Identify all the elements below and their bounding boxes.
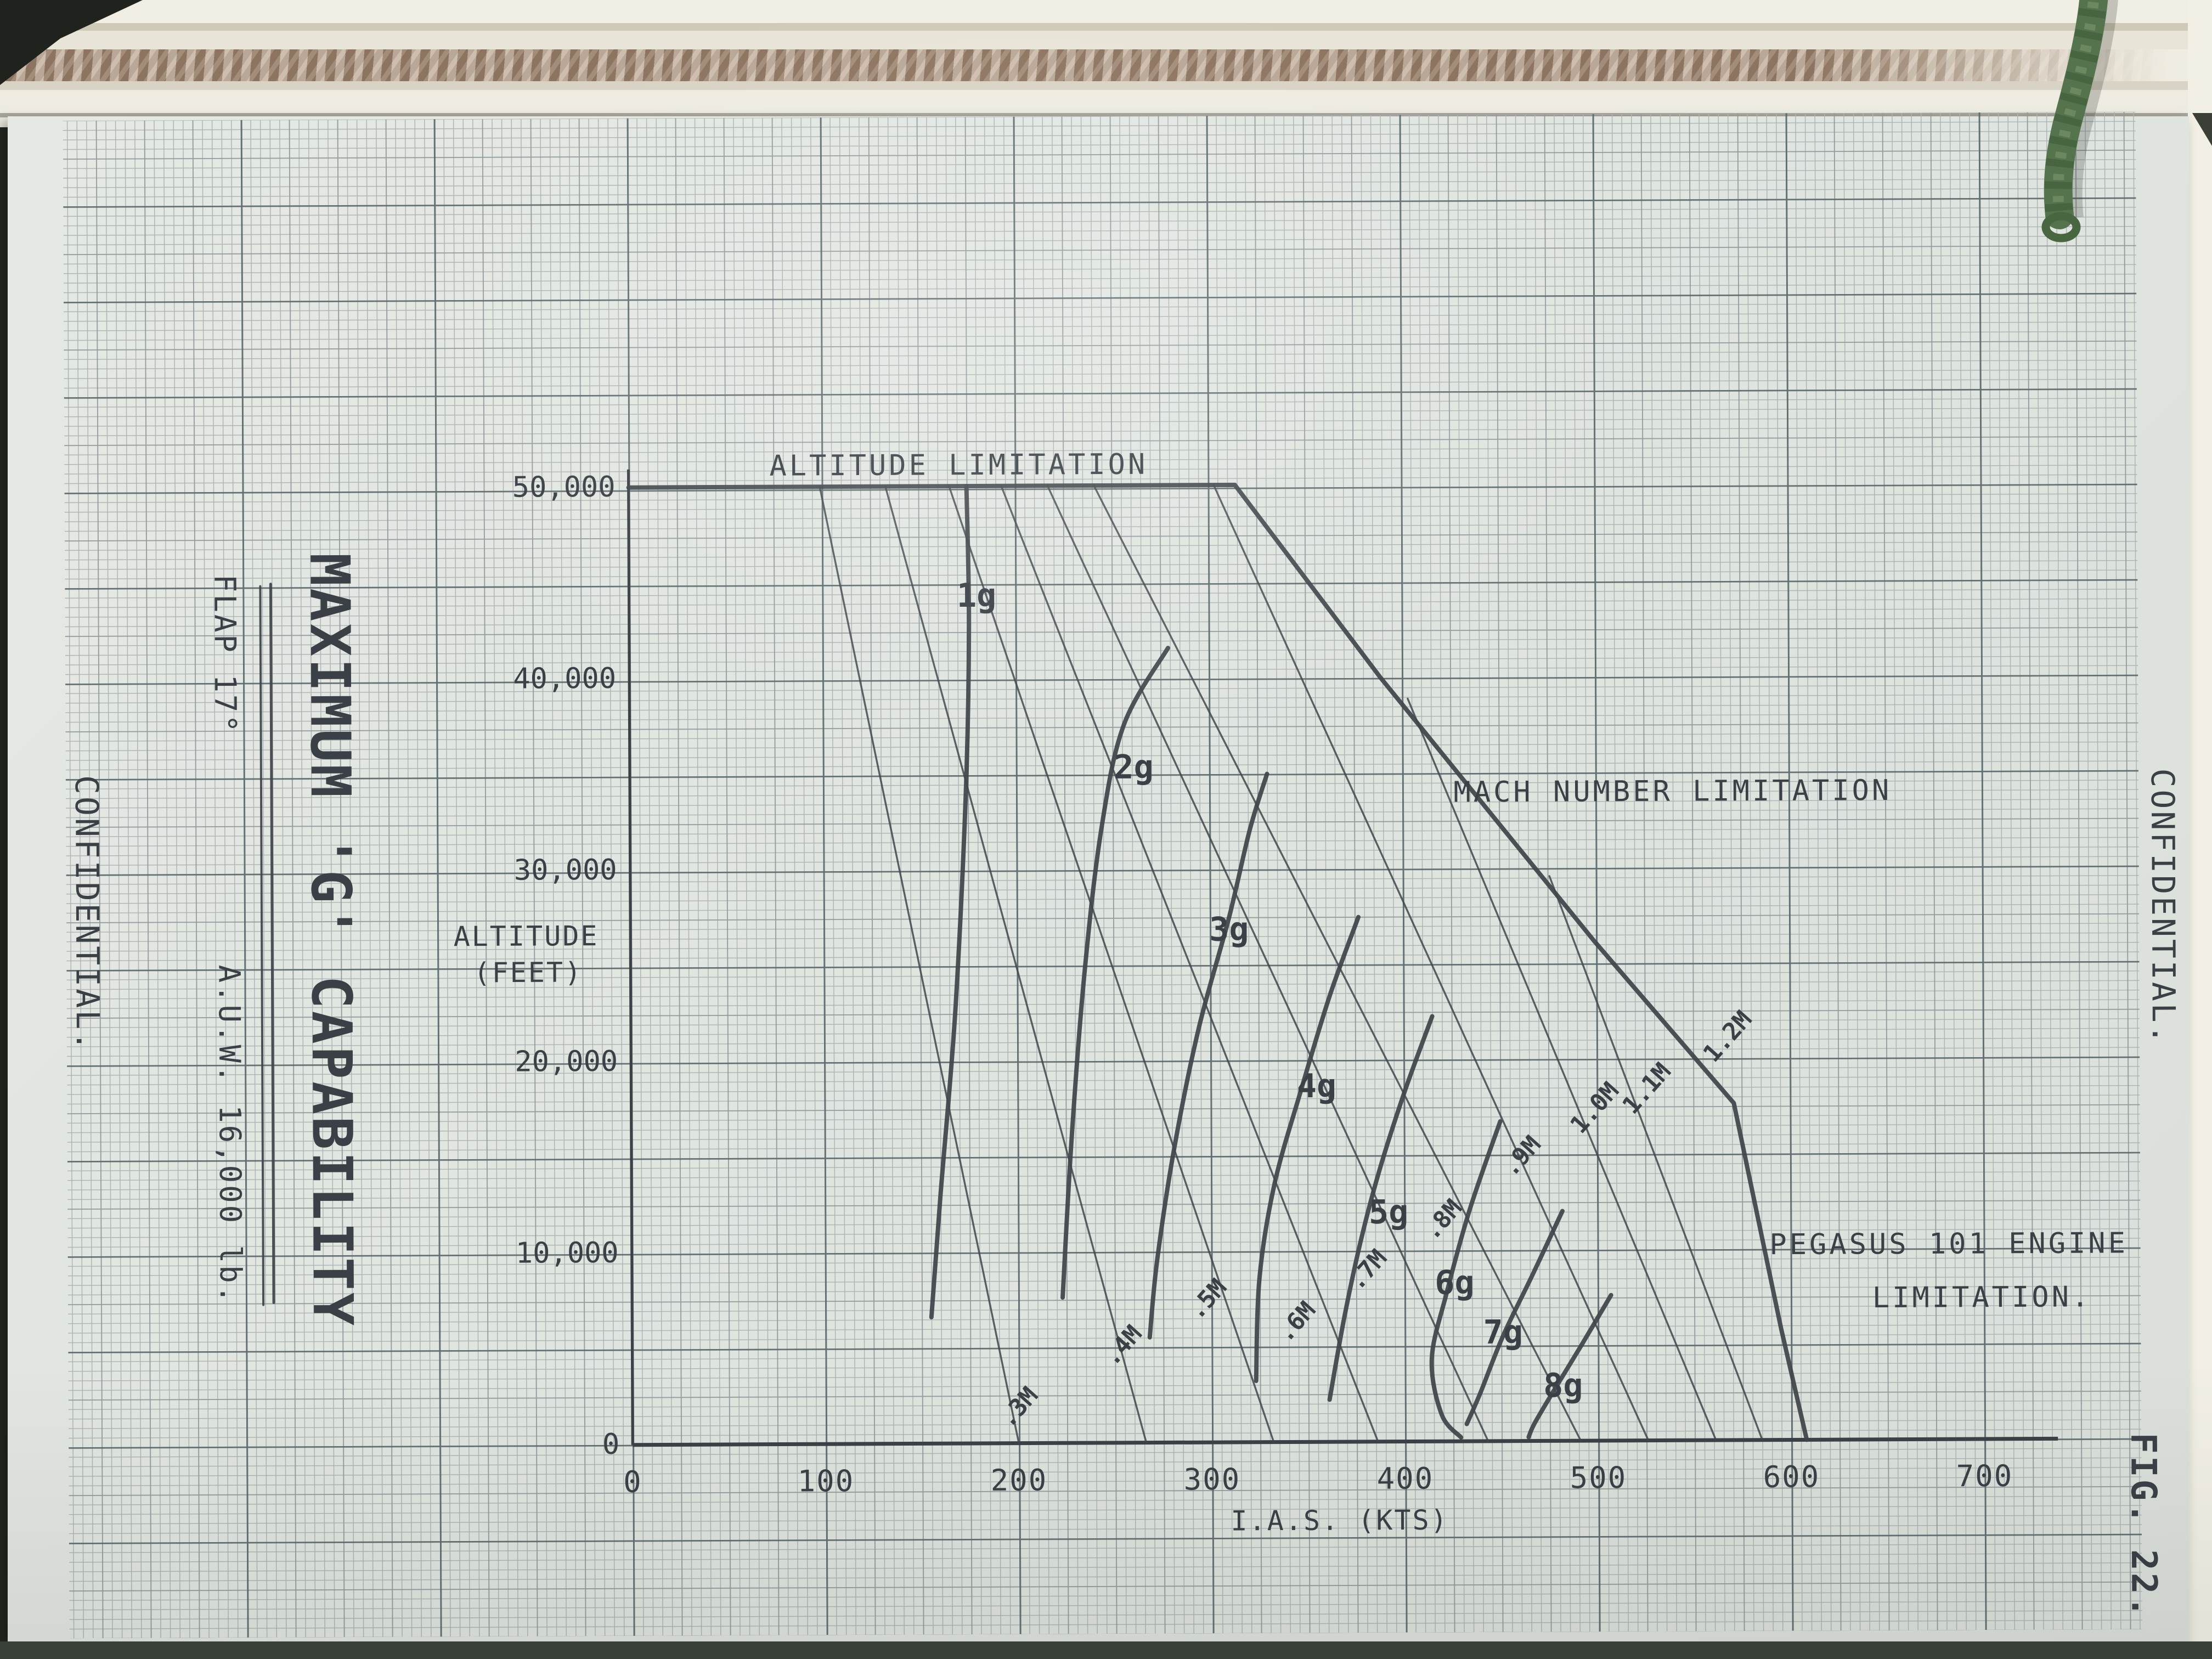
binding-cord (2008, 0, 2151, 252)
label-1g: 1g (957, 577, 997, 615)
annotation: (FEET) (473, 956, 583, 989)
annotation: ALTITUDE (454, 920, 599, 952)
y-tick-10,000: 10,000 (516, 1237, 619, 1270)
annotation: LIMITATION. (1872, 1280, 2092, 1314)
classification-right: CONFIDENTIAL. (2144, 768, 2182, 1046)
x-tick-100: 100 (798, 1464, 855, 1498)
label-5g: 5g (1369, 1193, 1409, 1232)
classification-left: CONFIDENTIAL. (68, 775, 106, 1053)
y-tick-40,000: 40,000 (513, 662, 616, 696)
label-8g: 8g (1543, 1367, 1583, 1405)
label-6g: 6g (1435, 1263, 1475, 1302)
label-2g: 2g (1114, 748, 1154, 787)
chart-title: MAXIMUM 'G' CAPABILITY (297, 553, 365, 1328)
grid (63, 112, 2142, 1638)
label-4g: 4g (1297, 1067, 1337, 1105)
x-tick-0: 0 (623, 1465, 642, 1499)
y-tick-0: 0 (602, 1428, 620, 1461)
x-tick-300: 300 (1184, 1462, 1241, 1497)
g-capability-chart: 1.2M1g2g3g4g5g6g7g8g.3M.4M.5M.6M.7M.8M.9… (0, 0, 2212, 1659)
y-tick-30,000: 30,000 (514, 854, 617, 887)
x-tick-600: 600 (1763, 1459, 1820, 1494)
x-tick-200: 200 (991, 1463, 1048, 1497)
y-tick-50,000: 50,000 (512, 471, 616, 504)
label-7g: 7g (1483, 1313, 1523, 1352)
figure-number: FIG. 22. (2123, 1432, 2164, 1620)
x-tick-500: 500 (1570, 1460, 1627, 1495)
label-3g: 3g (1209, 910, 1249, 949)
photographed-manual-page: 1.2M1g2g3g4g5g6g7g8g.3M.4M.5M.6M.7M.8M.9… (0, 0, 2212, 1659)
all-up-weight: A.U.W. 16,000 lb. (212, 964, 248, 1305)
x-tick-700: 700 (1956, 1459, 2013, 1493)
x-tick-400: 400 (1377, 1461, 1434, 1496)
annotation: ALTITUDE LIMITATION (769, 448, 1148, 483)
annotation: MACH NUMBER LIMITATION (1453, 774, 1892, 809)
y-tick-20,000: 20,000 (515, 1045, 618, 1079)
annotation: PEGASUS 101 ENGINE (1769, 1227, 2128, 1261)
annotation: I.A.S. (KTS) (1231, 1504, 1448, 1537)
table-surface (0, 1641, 2212, 1659)
flap-setting: FLAP 17° (207, 574, 242, 735)
